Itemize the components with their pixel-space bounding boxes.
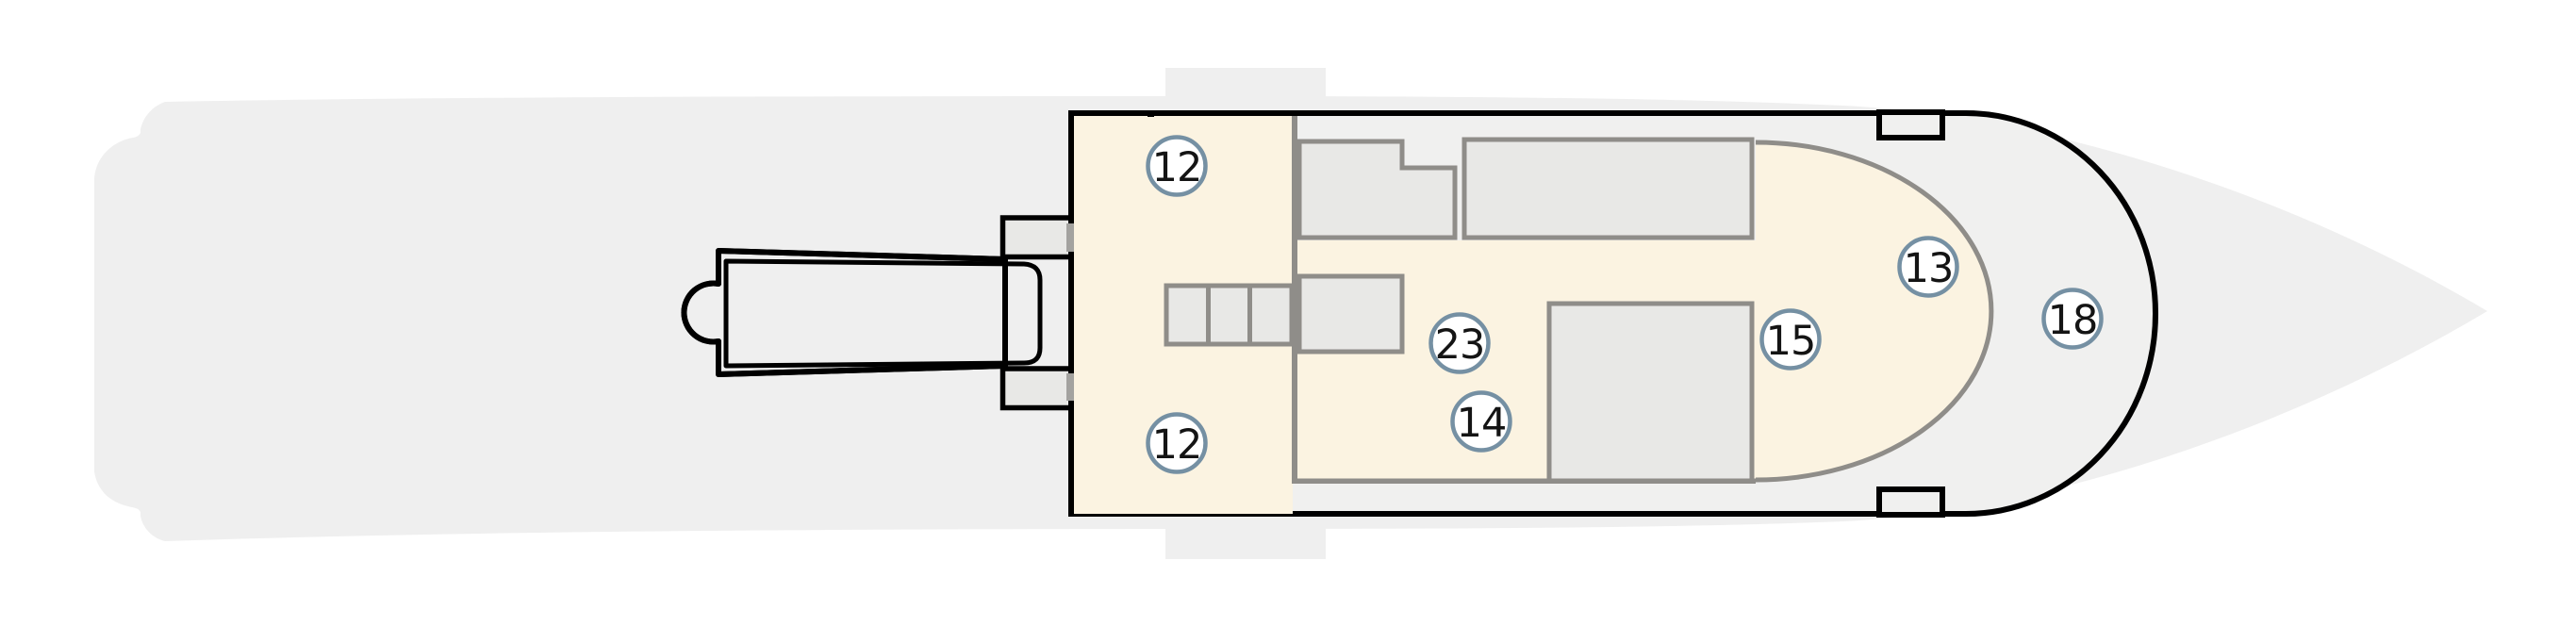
mooring-notch-bottom [1879,489,1942,515]
wing-band-top [1165,68,1326,112]
mooring-notch-top [1879,112,1942,138]
deck-marker-18: 18 [2044,290,2102,348]
deck-marker-13: 13 [1900,239,1957,296]
marker-label: 14 [1457,400,1507,447]
tender-crane [684,251,1040,374]
marker-label: 15 [1766,318,1816,365]
marker-label: 18 [2048,297,2098,344]
crane-mount-lower [1002,371,1067,405]
deck-plan-canvas: 12122314151318 [0,0,2576,643]
deck-plan-svg: 12122314151318 [0,0,2576,643]
crane-mount-upper [1002,220,1067,255]
crane-mount-upper-junction [1066,223,1074,252]
crane-mount-lower-junction [1066,373,1074,401]
corridor-lower-wall [1297,479,1756,485]
deck-marker-23: 23 [1431,315,1489,372]
deck-marker-12-aft-starboard: 12 [1148,415,1206,472]
marker-label: 23 [1435,321,1485,369]
deck-interior [1074,110,1991,515]
marker-label: 13 [1904,245,1954,292]
deck-marker-15: 15 [1762,311,1820,369]
room-upper-right [1464,140,1752,238]
room-mid-left [1299,276,1402,352]
room-center [1549,304,1752,481]
deck-marker-12-aft-port: 12 [1148,138,1206,195]
wing-band-bottom [1165,512,1326,559]
marker-label: 12 [1152,421,1202,469]
door-tick [1148,110,1154,117]
crane-arm [726,261,1040,366]
marker-label: 12 [1152,144,1202,191]
stairs-block [1166,286,1292,344]
deck-marker-14: 14 [1453,393,1511,451]
